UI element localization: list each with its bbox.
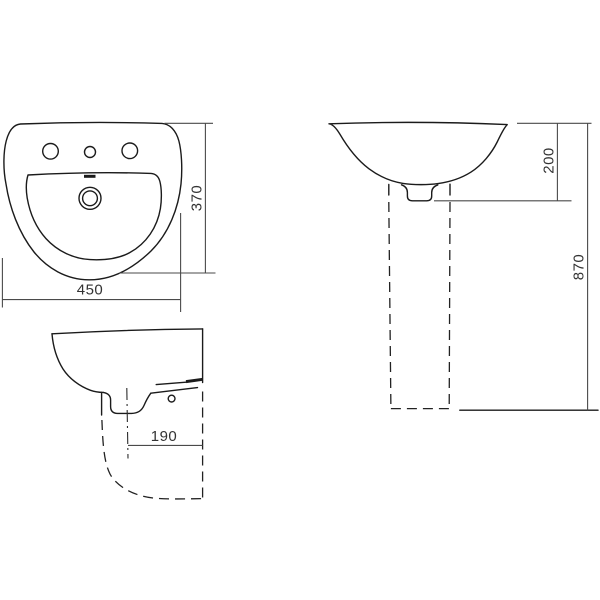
side-top-edge xyxy=(52,329,203,334)
side-profile-outline xyxy=(52,334,103,393)
rim-ledge-upper xyxy=(156,382,186,384)
rim-ledge-lower xyxy=(151,388,198,394)
inner-bowl-outline xyxy=(26,173,161,260)
pedestal-hidden-left xyxy=(389,202,391,409)
dim-450-label: 450 xyxy=(77,282,104,299)
drain-inner-circle xyxy=(83,191,98,206)
drawing-canvas: 370 450 190 xyxy=(0,0,600,600)
dim-200-label: 200 xyxy=(541,147,558,174)
fixing-hole xyxy=(168,395,175,402)
basin-side-view: 190 xyxy=(52,329,203,499)
faucet-hole-right xyxy=(122,143,138,159)
dim-870-label: 870 xyxy=(571,254,588,281)
drawing-sheet: 370 450 190 xyxy=(0,0,600,600)
basin-front-view: 200 870 xyxy=(329,122,598,410)
dim-370-label: 370 xyxy=(189,185,206,212)
front-basin-outline xyxy=(329,122,507,184)
drain-centerline xyxy=(127,388,128,459)
faucet-hole-left xyxy=(43,144,59,160)
drain-cup-outline xyxy=(402,185,438,201)
basin-top-view: 370 450 xyxy=(2,122,215,312)
faucet-hole-center xyxy=(85,147,96,158)
rim-ledge-wedge xyxy=(186,379,203,381)
dim-190-label: 190 xyxy=(151,428,178,445)
pedestal-hidden-right xyxy=(449,202,450,409)
outer-rim-outline xyxy=(4,122,182,279)
